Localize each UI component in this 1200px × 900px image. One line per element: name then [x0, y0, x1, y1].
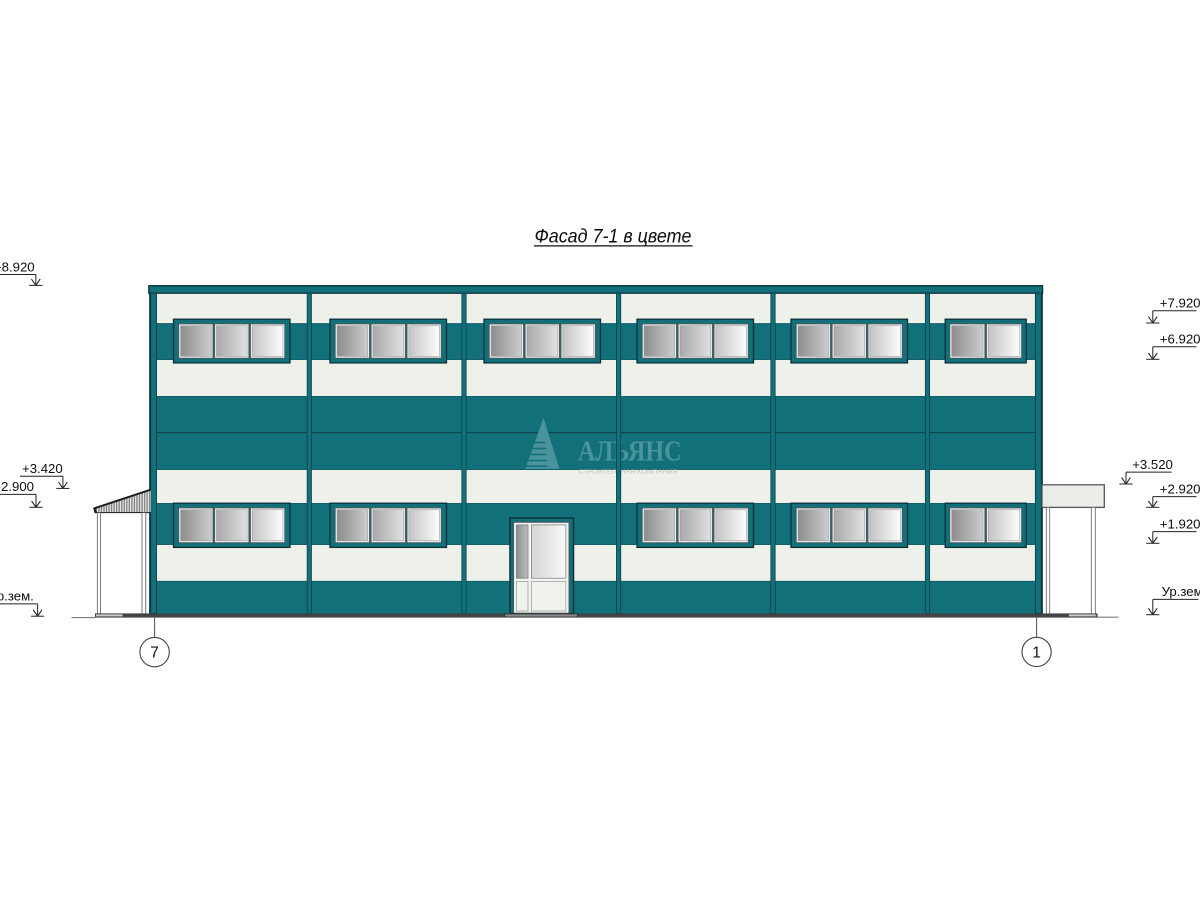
svg-text:+6.920: +6.920: [1160, 332, 1200, 347]
svg-text:Ур.зем: Ур.зем: [1162, 584, 1200, 599]
svg-text:1: 1: [1032, 644, 1041, 661]
svg-text:АЛЬЯНС: АЛЬЯНС: [578, 437, 682, 468]
svg-text:Фасад 7-1 в цвете: Фасад 7-1 в цвете: [535, 225, 692, 247]
svg-text:7: 7: [150, 645, 159, 662]
svg-text:+1.920: +1.920: [1160, 516, 1200, 531]
svg-text:Ур.зем.: Ур.зем.: [0, 589, 34, 604]
svg-text:+7.920: +7.920: [1160, 296, 1200, 311]
svg-text:+2.900: +2.900: [0, 479, 34, 494]
svg-text:СТРОИТЕЛЬНАЯ КОМПАНИЯ: СТРОИТЕЛЬНАЯ КОМПАНИЯ: [579, 470, 678, 476]
svg-text:+2.920: +2.920: [1160, 481, 1200, 496]
svg-text:+3.420: +3.420: [22, 461, 63, 476]
svg-text:+3.520: +3.520: [1132, 457, 1173, 472]
svg-text:+8.920: +8.920: [0, 259, 35, 274]
